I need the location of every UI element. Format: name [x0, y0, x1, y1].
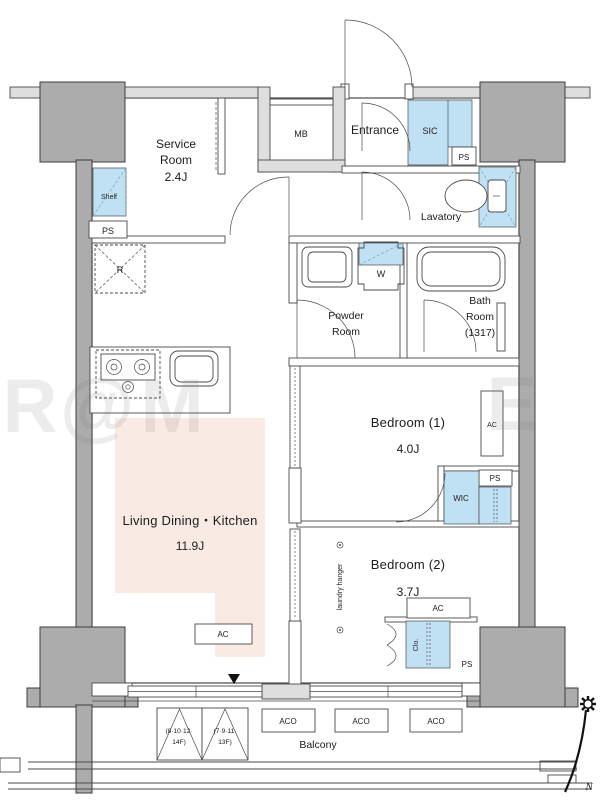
refrigerator-label: R	[117, 265, 124, 275]
ac-label-ldk: AC	[217, 630, 228, 639]
wall-service-right	[218, 98, 225, 174]
watermark-letter: M	[140, 364, 203, 449]
washing-machine-label: W	[377, 269, 386, 279]
powder-room-label-2: Room	[332, 326, 360, 338]
shelf-label: Shelf	[101, 194, 117, 201]
powder-room-label-1: Powder	[328, 310, 364, 322]
hatch2-label-1: (7·9·11·	[214, 728, 237, 735]
mb-wall-bottom	[258, 160, 345, 172]
balcony-label: Balcony	[299, 739, 337, 751]
ldk-size: 11.9J	[176, 539, 204, 553]
pillar-bottom-right	[480, 627, 565, 707]
bedroom1-size: 4.0J	[397, 442, 420, 456]
mb-wall-left	[258, 87, 270, 172]
mb-wall-right	[333, 87, 345, 172]
watermark-letter: R	[3, 364, 58, 449]
bath-room-label-1: Bath	[469, 295, 491, 307]
north-compass: N	[565, 696, 596, 793]
laundry-hanger-label: laundry hanger	[337, 563, 344, 610]
service-room-label-2: Room	[160, 153, 192, 167]
ac-label-bedroom2: AC	[432, 604, 443, 613]
bedroom2-label: Bedroom (2)	[371, 557, 445, 572]
pipe-space-label-left: PS	[102, 226, 114, 236]
wall-bottom-stub	[262, 684, 310, 699]
wall-bottom-left	[92, 683, 132, 696]
hatch1-label-2: 14F)	[172, 739, 186, 746]
lavatory-label: Lavatory	[421, 211, 462, 223]
sliding-partition-bedroom2	[290, 529, 300, 621]
mb-door	[270, 99, 333, 105]
bedroom2-size: 3.7J	[397, 585, 420, 599]
wall-powder-left	[289, 243, 297, 303]
floor-plan-drawing: N Service Room 2.4J MB Entrance SIC PS S…	[0, 0, 600, 800]
service-room-label-1: Service	[156, 137, 196, 151]
wic-label: WIC	[453, 494, 469, 503]
hatch1-label-1: (8·10·12·	[165, 728, 192, 735]
watermark-letter: @	[60, 364, 134, 449]
sliding-partition-bedroom1	[290, 366, 300, 468]
watermark-letter: E	[487, 362, 538, 447]
pipe-space-label-bedroom1: PS	[490, 474, 501, 483]
pipe-space-label-bedroom2: PS	[462, 660, 473, 669]
wall-bedroom1-top	[289, 358, 519, 366]
bath-room-size: (1317)	[465, 327, 495, 339]
wall-ldk-divider-mid	[289, 468, 301, 523]
wall-lavatory-bottom	[289, 236, 520, 243]
washbasin	[302, 247, 352, 287]
bedroom1-label: Bedroom (1)	[371, 415, 445, 430]
north-label: N	[584, 781, 593, 793]
pillar-top-left	[40, 82, 125, 162]
hatch2-label-2: 13F)	[218, 739, 232, 746]
aco-label-2: ACO	[352, 717, 369, 726]
pillar-top-right	[480, 82, 565, 162]
shelf	[93, 168, 126, 216]
pillar-flange	[565, 688, 578, 707]
closet-label: Clo.	[413, 639, 420, 652]
bath-room-label-2: Room	[466, 311, 494, 323]
bathtub	[417, 247, 505, 291]
wall-left-strip-lower	[76, 705, 92, 793]
aco-label-1: ACO	[279, 717, 296, 726]
floor-plan-page: N Service Room 2.4J MB Entrance SIC PS S…	[0, 0, 600, 800]
entrance-label: Entrance	[351, 123, 399, 137]
wall-ldk-divider-low	[289, 621, 301, 685]
service-room-size: 2.4J	[165, 170, 188, 184]
shoe-closet-label: SIC	[422, 126, 438, 136]
pipe-space-label-sic: PS	[459, 153, 470, 162]
wall-wic-left	[438, 466, 444, 524]
bedroom2-balcony-window	[310, 686, 462, 697]
pillar-flange	[27, 688, 40, 707]
ldk-label: Living Dining・Kitchen	[123, 513, 258, 528]
front-door-swing	[345, 20, 412, 87]
aco-label-3: ACO	[427, 717, 444, 726]
wall-bottom-right	[462, 683, 480, 696]
ldk-balcony-window	[128, 686, 262, 697]
meter-box-label: MB	[294, 129, 308, 139]
